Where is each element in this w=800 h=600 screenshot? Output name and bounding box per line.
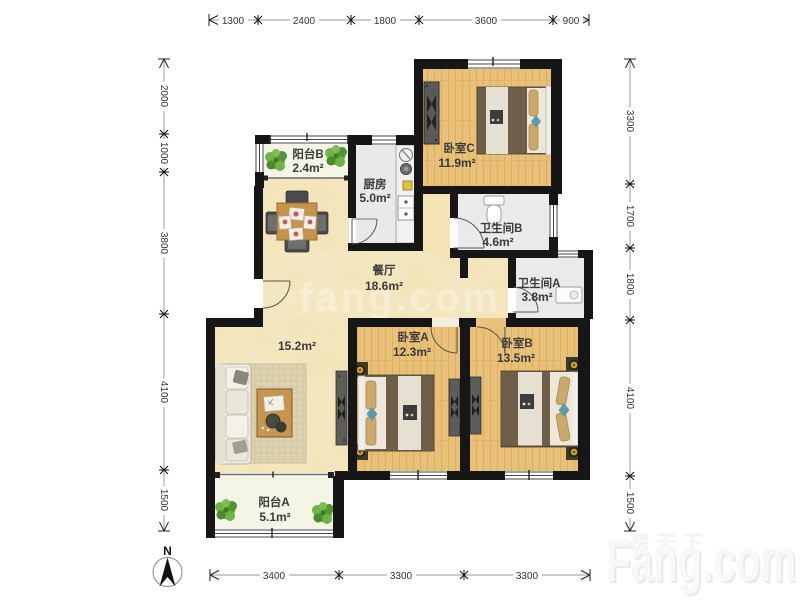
svg-text:1500: 1500	[158, 489, 169, 512]
svg-text:Fang.com: Fang.com	[606, 527, 796, 594]
svg-text:1500: 1500	[624, 492, 635, 515]
svg-text:18.6m²: 18.6m²	[365, 279, 403, 293]
svg-text:1800: 1800	[624, 273, 635, 296]
svg-text:4.6m²: 4.6m²	[482, 235, 513, 249]
svg-text:3400: 3400	[263, 571, 286, 582]
svg-text:卧室C: 卧室C	[443, 141, 474, 155]
svg-text:卫生间A: 卫生间A	[518, 276, 561, 290]
svg-text:1000: 1000	[158, 142, 169, 165]
svg-text:13.5m²: 13.5m²	[497, 351, 535, 365]
svg-text:11.9m²: 11.9m²	[438, 156, 475, 170]
svg-text:2000: 2000	[158, 85, 169, 108]
svg-text:卧室B: 卧室B	[501, 336, 532, 350]
svg-text:12.3m²: 12.3m²	[393, 345, 431, 359]
svg-text:3300: 3300	[390, 571, 413, 582]
svg-text:5.0m²: 5.0m²	[359, 191, 390, 205]
svg-text:3300: 3300	[516, 571, 539, 582]
svg-text:3800: 3800	[158, 232, 169, 255]
svg-text:4100: 4100	[158, 381, 169, 404]
svg-text:15.2m²: 15.2m²	[278, 339, 316, 353]
svg-text:5.1m²: 5.1m²	[259, 510, 290, 524]
svg-text:1800: 1800	[374, 16, 397, 27]
svg-text:N: N	[163, 544, 172, 558]
svg-text:2400: 2400	[293, 16, 316, 27]
svg-text:1300: 1300	[222, 16, 245, 27]
svg-text:900: 900	[563, 16, 580, 27]
svg-text:卫生间B: 卫生间B	[480, 221, 523, 235]
svg-text:4100: 4100	[624, 387, 635, 410]
svg-text:3300: 3300	[624, 110, 635, 133]
svg-text:2.4m²: 2.4m²	[292, 161, 323, 175]
svg-text:3600: 3600	[475, 16, 498, 27]
svg-text:3.8m²: 3.8m²	[521, 290, 552, 304]
svg-text:卧室A: 卧室A	[397, 330, 428, 344]
svg-text:厨房: 厨房	[364, 177, 387, 191]
svg-text:阳台B: 阳台B	[292, 147, 323, 161]
svg-text:餐厅: 餐厅	[372, 263, 396, 277]
svg-text:阳台A: 阳台A	[258, 495, 289, 509]
svg-text:1700: 1700	[624, 205, 635, 228]
